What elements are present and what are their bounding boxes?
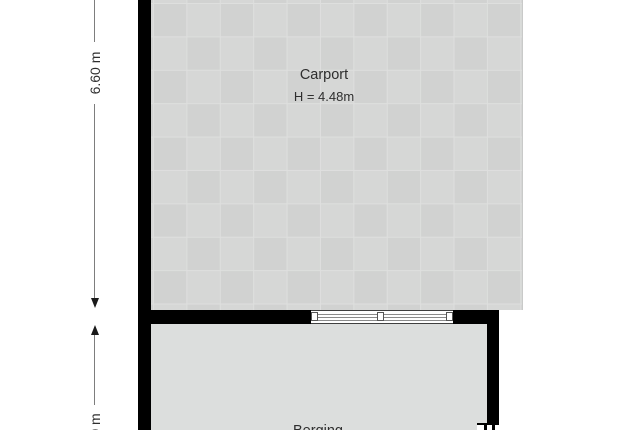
room-label-berging: Berging — [238, 423, 398, 430]
dimension-line-carport-lower — [94, 104, 95, 298]
arrow-down-icon — [91, 298, 99, 308]
wall-berging-top-left — [138, 310, 311, 324]
dimension-line-carport-upper — [94, 0, 95, 42]
floorplan-canvas: 6.60 m 0 m Carport H = 4.48m Berging — [0, 0, 640, 430]
dimension-label-berging: 0 m — [85, 390, 105, 430]
dimension-label-carport: 6.60 m — [85, 38, 105, 108]
wall-berging-right — [487, 310, 499, 424]
window-berging-north — [311, 310, 453, 324]
room-label-carport: Carport — [244, 67, 404, 83]
window-cap-left — [311, 312, 318, 321]
window-berging-east-partial — [477, 423, 499, 430]
window-cap-center — [377, 312, 384, 321]
wall-left — [138, 0, 151, 430]
window-cap-right — [446, 312, 453, 321]
carport-floor — [151, 0, 523, 310]
arrow-up-icon — [91, 325, 99, 335]
berging-floor — [151, 324, 487, 430]
room-height-carport: H = 4.48m — [244, 89, 404, 104]
